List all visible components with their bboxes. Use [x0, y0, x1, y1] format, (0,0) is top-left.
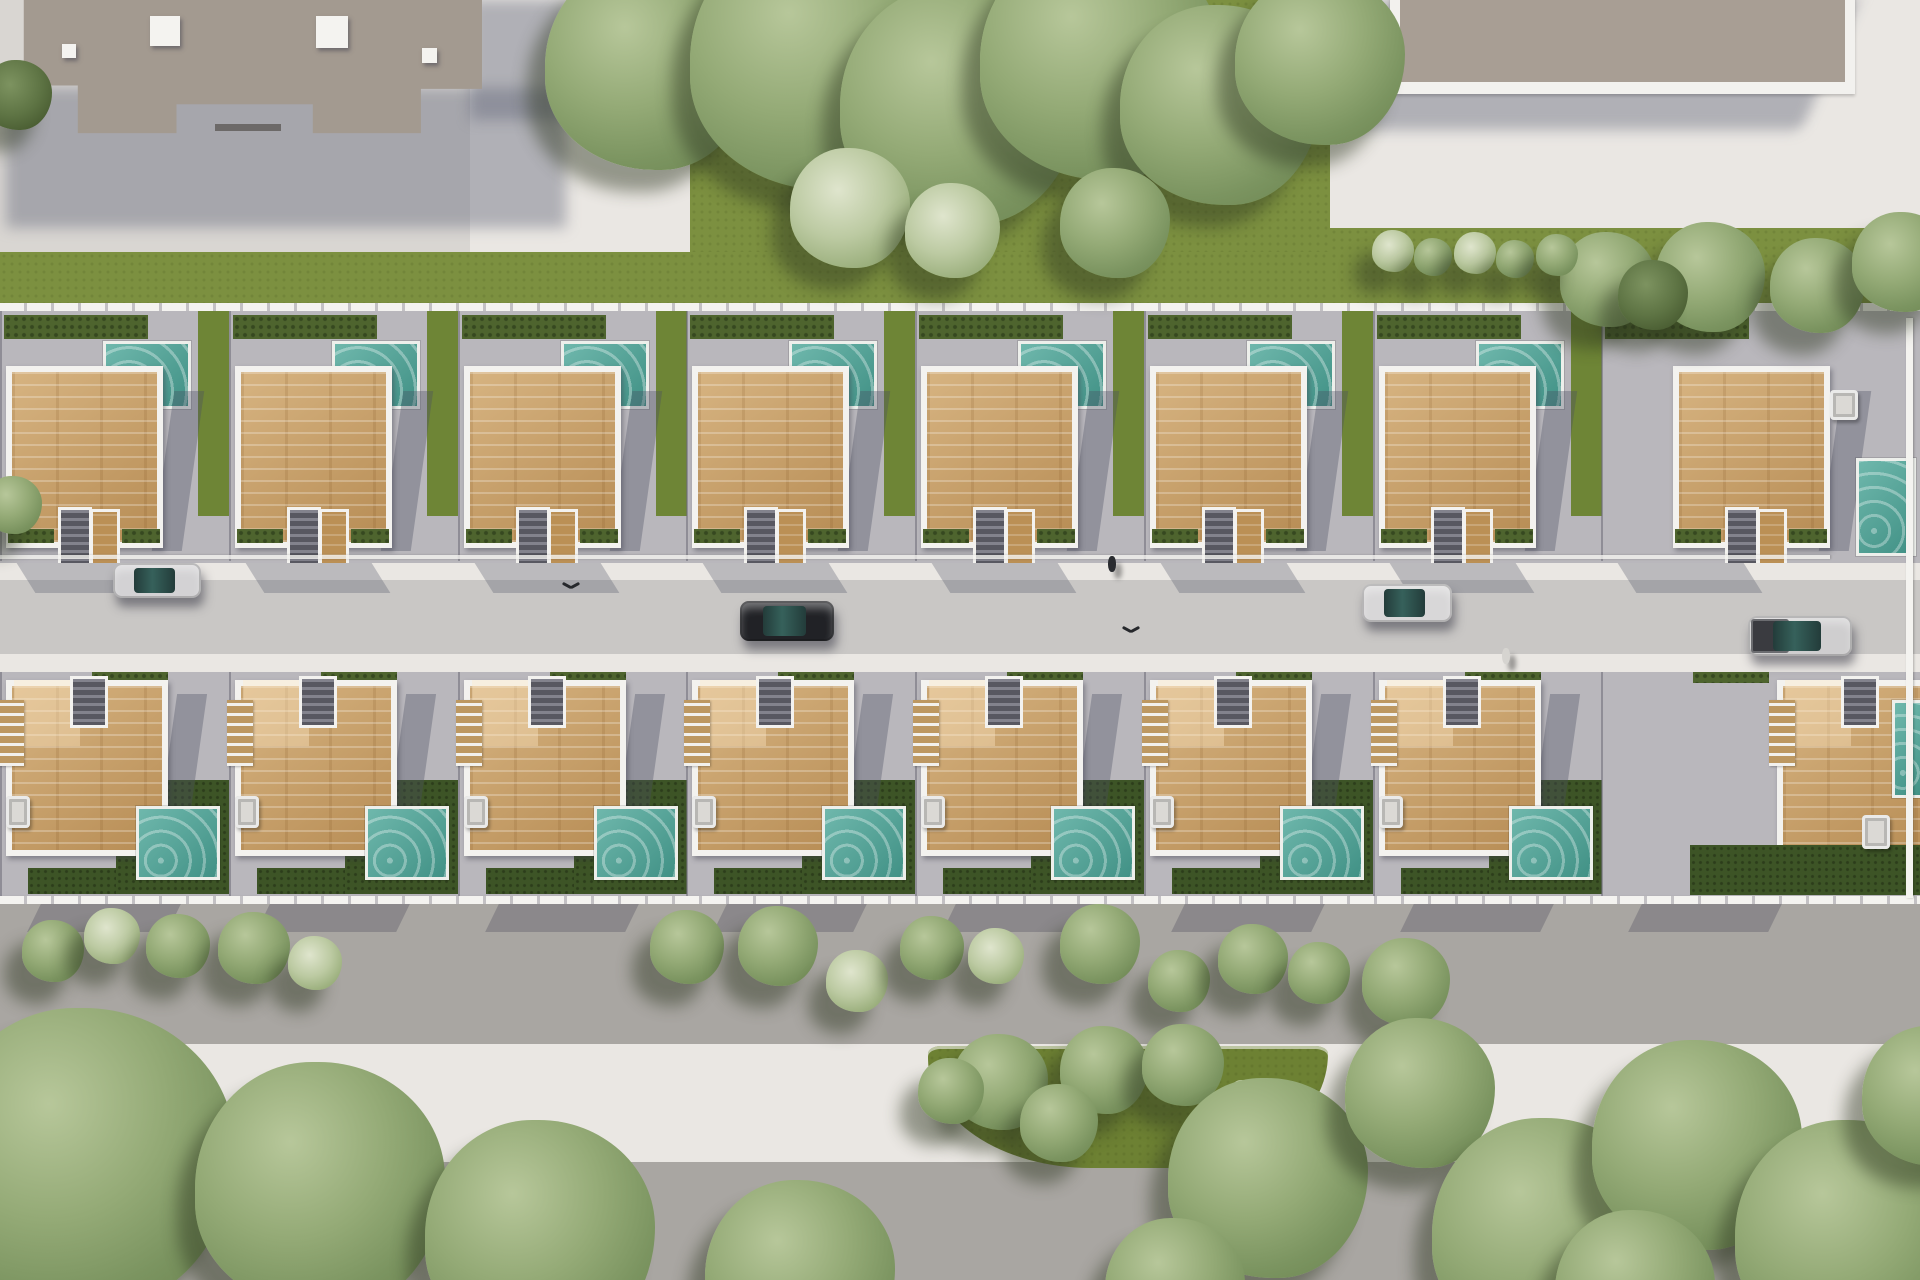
car-windows [1384, 589, 1425, 617]
tree [900, 916, 964, 980]
tree [918, 1058, 984, 1124]
back-hedge-bed [1377, 315, 1521, 339]
entry-stairs [1214, 676, 1252, 728]
tree [146, 914, 210, 978]
tree [738, 906, 818, 986]
entry-stairs [1431, 507, 1465, 571]
backyard-lawn [714, 868, 802, 894]
fence-shadow-on-boulevard [1628, 904, 1782, 932]
villa-row-south [0, 672, 1920, 902]
front-hedge [580, 529, 618, 543]
silver-sedan [113, 563, 201, 598]
party-wall [458, 311, 460, 561]
side-lawn-strip [1342, 311, 1373, 516]
front-hedge [237, 529, 283, 543]
private-pool [1051, 806, 1135, 880]
back-hedge-bed [1148, 315, 1292, 339]
garden-table [6, 796, 30, 828]
entry-stairs [58, 507, 92, 571]
back-hedge-bed [233, 315, 377, 339]
entry-stairs [985, 676, 1023, 728]
boundary-wall-east [1906, 318, 1913, 898]
bush [1372, 230, 1414, 272]
tree [650, 910, 724, 984]
perimeter-fence-south [0, 896, 1920, 904]
entry-stairs [1841, 676, 1879, 728]
entry-stairs [973, 507, 1007, 571]
bush [1496, 240, 1534, 278]
rooftop-ac-unit [316, 16, 348, 48]
garden-table [1379, 796, 1403, 828]
villa-unit-north [458, 311, 687, 563]
villa-unit-south [686, 672, 915, 902]
villa-unit-south [915, 672, 1144, 902]
front-hedge [1266, 529, 1304, 543]
tree [1288, 942, 1350, 1004]
front-hedge [1381, 529, 1427, 543]
villa-unit-north [1601, 311, 1830, 563]
garden-table [1830, 390, 1858, 420]
back-hedge-bed [690, 315, 834, 339]
black-suv [740, 601, 834, 641]
entry-stairs [287, 507, 321, 571]
front-hedge [923, 529, 969, 543]
villa-row-north [0, 311, 1920, 563]
rooftop-ac-unit [422, 48, 437, 63]
bush [1414, 238, 1452, 276]
entry-stairs [756, 676, 794, 728]
front-hedge [1675, 529, 1721, 543]
tree [1362, 938, 1450, 1026]
front-hedge [1495, 529, 1533, 543]
front-hedge [351, 529, 389, 543]
tree [288, 936, 342, 990]
small-building-roof-surface [1400, 0, 1845, 82]
side-lawn-strip [427, 311, 458, 516]
fence-shadow-on-boulevard [485, 904, 639, 932]
villa-unit-south [458, 672, 687, 902]
rooftop-ac-unit [62, 44, 76, 58]
villa-unit-north [686, 311, 915, 563]
party-wall [229, 311, 231, 561]
car-windows [134, 568, 175, 594]
garden-table [1150, 796, 1174, 828]
private-pool [594, 806, 678, 880]
side-pergola [227, 700, 253, 766]
villa-shadow-on-street [932, 563, 1077, 593]
car-windows [1773, 621, 1821, 651]
back-hedge-bed [462, 315, 606, 339]
bush [1536, 234, 1578, 276]
sidewalk-south [0, 654, 1920, 672]
tree [1618, 260, 1688, 330]
garden-table [692, 796, 716, 828]
front-wall [229, 555, 458, 559]
side-pergola [1142, 700, 1168, 766]
backyard-lawn [257, 868, 345, 894]
entry-stairs [1443, 676, 1481, 728]
side-lawn-strip [198, 311, 229, 516]
entry-stairs [744, 507, 778, 571]
backyard-lawn [28, 868, 116, 894]
villa-unit-south [0, 672, 229, 902]
tree [1060, 168, 1170, 278]
pedestrian [1108, 556, 1116, 572]
side-pergola [684, 700, 710, 766]
backyard-lawn [943, 868, 1031, 894]
garden-table [235, 796, 259, 828]
backyard-lawn [1172, 868, 1260, 894]
front-hedge [1789, 529, 1827, 543]
bird [562, 580, 580, 590]
front-wall [1144, 555, 1373, 559]
backyard-lawn [1401, 868, 1489, 894]
private-pool [822, 806, 906, 880]
backyard-lawn [486, 868, 574, 894]
tree [84, 908, 140, 964]
party-wall [1601, 672, 1603, 900]
front-hedge [466, 529, 512, 543]
fence-shadow-on-boulevard [1400, 904, 1554, 932]
garden-table [464, 796, 488, 828]
front-hedge [694, 529, 740, 543]
tree [1020, 1084, 1098, 1162]
villa-shadow-on-street [1618, 563, 1763, 593]
garden-table [921, 796, 945, 828]
entry-stairs [516, 507, 550, 571]
private-pool [136, 806, 220, 880]
front-hedge [808, 529, 846, 543]
side-lawn-strip [884, 311, 915, 516]
tree [1770, 238, 1865, 333]
entry-stairs [1725, 507, 1759, 571]
private-pool [365, 806, 449, 880]
side-lawn-strip [656, 311, 687, 516]
front-wall [0, 555, 229, 559]
back-hedge-bed [4, 315, 148, 339]
entry-stairs [70, 676, 108, 728]
villa-unit-north [1144, 311, 1373, 563]
side-pergola [1371, 700, 1397, 766]
villa-unit-north [915, 311, 1144, 563]
private-pool [1280, 806, 1364, 880]
villa-shadow-on-street [245, 563, 390, 593]
villa-unit-south [1373, 672, 1602, 902]
front-wall [1373, 555, 1602, 559]
villa-unit-south [1144, 672, 1373, 902]
villa-unit-north [0, 311, 229, 563]
bush [1454, 232, 1496, 274]
front-hedge [1037, 529, 1075, 543]
tree [218, 912, 290, 984]
tree [826, 950, 888, 1012]
back-hedge-bed [919, 315, 1063, 339]
villa-shadow-on-street [1160, 563, 1305, 593]
front-wall [686, 555, 915, 559]
tree [195, 1062, 445, 1280]
front-plants [1693, 672, 1769, 683]
party-wall [1144, 311, 1146, 561]
party-wall [686, 311, 688, 561]
tree [790, 148, 910, 268]
party-wall [915, 311, 917, 561]
aerial-development-render [0, 0, 1920, 1280]
entry-stairs [299, 676, 337, 728]
front-wall [458, 555, 687, 559]
tree [968, 928, 1024, 984]
party-wall [1601, 311, 1603, 561]
tree [1148, 950, 1210, 1012]
villa-unit-north [1373, 311, 1602, 563]
party-wall [1373, 311, 1375, 561]
tree [1060, 904, 1140, 984]
garden-table [1862, 815, 1890, 849]
pedestrian [1502, 648, 1510, 664]
entry-stairs [528, 676, 566, 728]
small-building-roof [1390, 0, 1855, 94]
front-hedge [122, 529, 160, 543]
private-pool [1509, 806, 1593, 880]
car-windows [763, 606, 806, 636]
tree [905, 183, 1000, 278]
villa-shadow-on-street [703, 563, 848, 593]
side-pergola [456, 700, 482, 766]
tree [1218, 924, 1288, 994]
side-lawn-strip [1113, 311, 1144, 516]
bird [1122, 624, 1140, 634]
villa-shadow-on-street [474, 563, 619, 593]
silver-sedan [1362, 584, 1452, 622]
entry-stairs [1202, 507, 1236, 571]
rooftop-ac-unit [150, 16, 180, 46]
front-hedge [1152, 529, 1198, 543]
backyard-lawn [1690, 845, 1920, 895]
side-lawn-strip [1571, 311, 1602, 516]
tree [22, 920, 84, 982]
side-pergola [913, 700, 939, 766]
front-wall [1601, 555, 1830, 559]
villa-unit-north [229, 311, 458, 563]
pickup-truck [1748, 616, 1852, 656]
side-pergola [0, 700, 24, 766]
villa-unit-south [229, 672, 458, 902]
side-pergola [1769, 700, 1795, 766]
roof-vent [215, 124, 281, 131]
